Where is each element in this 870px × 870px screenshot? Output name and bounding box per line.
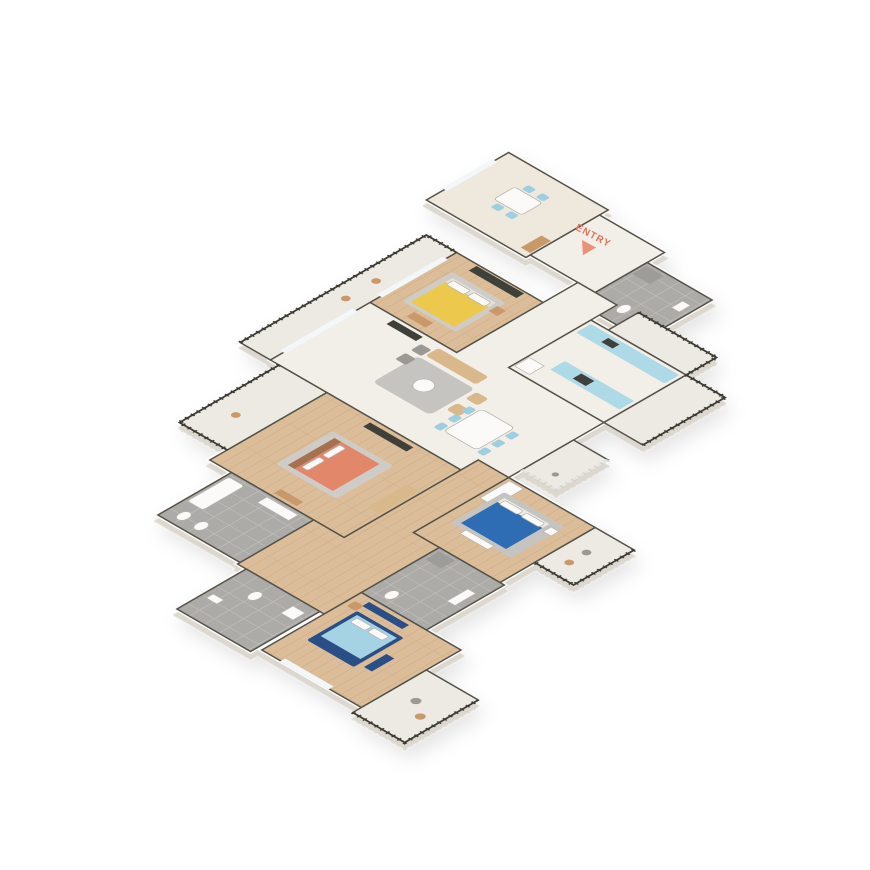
building (0, 151, 870, 743)
floorplan-svg: HOUSING (0, 0, 870, 870)
floorplan-canvas: HOUSING (0, 0, 870, 870)
